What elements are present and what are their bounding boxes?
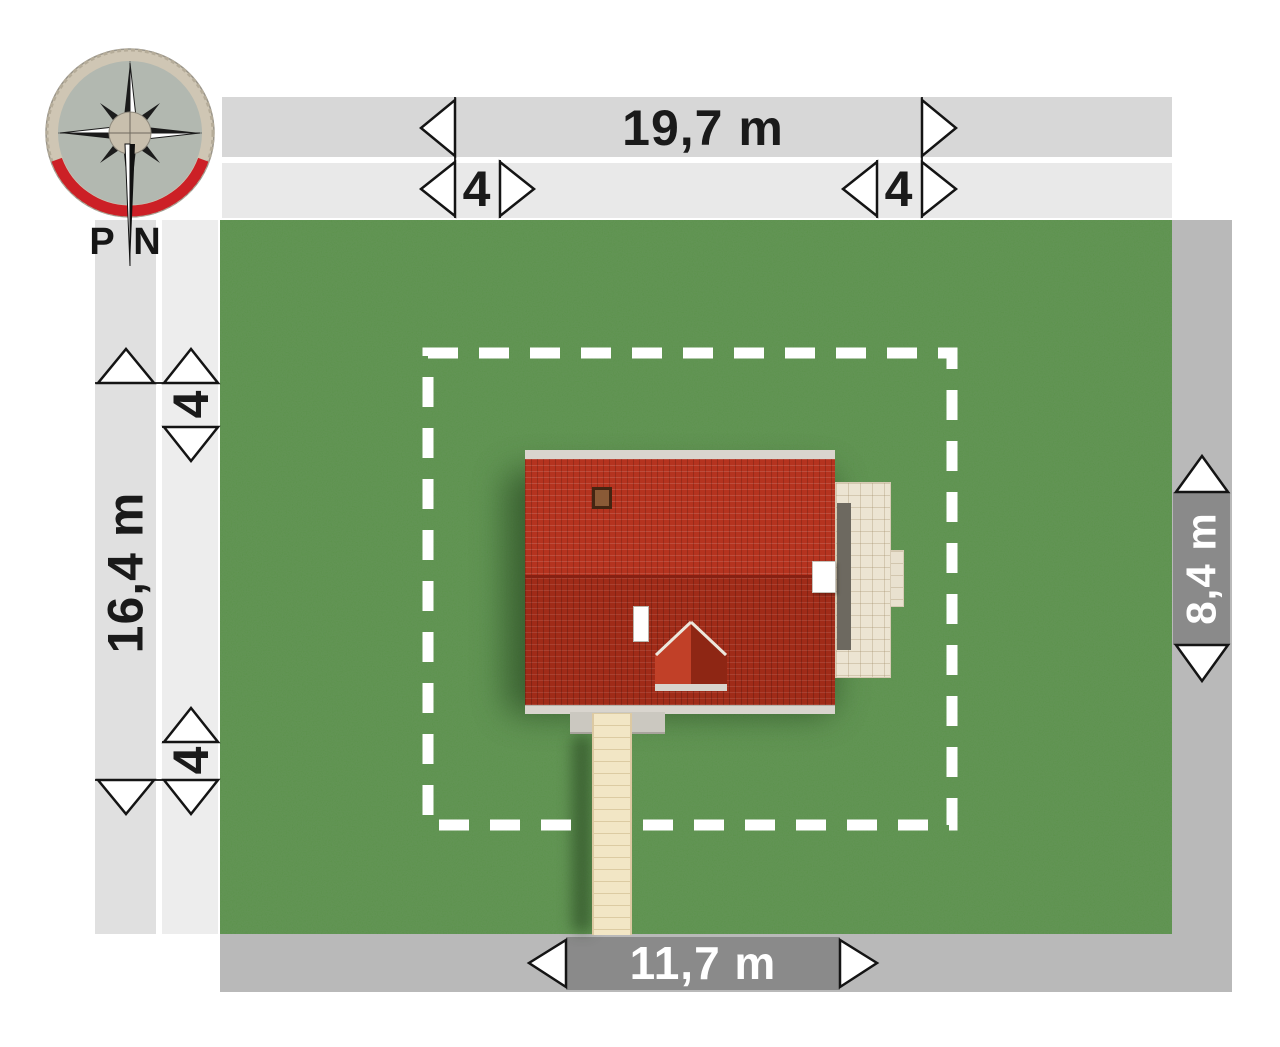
gable-right-face — [691, 621, 727, 691]
gable-eave — [655, 684, 727, 691]
chimney — [592, 487, 612, 509]
house-width-label: 11,7 m — [553, 937, 853, 990]
dimension-band-top-inner — [222, 163, 1172, 218]
walkway-shadow — [572, 735, 592, 933]
roof-slope-north — [525, 459, 835, 575]
compass-south-label: P — [84, 222, 120, 262]
gable-left-face — [655, 621, 691, 691]
setback-left-bottom-label: 4 — [164, 730, 218, 790]
setback-top-right-label: 4 — [869, 162, 929, 216]
dimension-band-left-inner — [162, 220, 218, 934]
ventilation-stack — [812, 561, 836, 593]
site-plan-page: 19,7 m 4 4 16,4 m 4 4 8,4 m 11,7 m — [0, 0, 1280, 1047]
terrace-step — [891, 550, 904, 607]
setback-left-top-label: 4 — [164, 374, 218, 434]
entry-gable-roof — [655, 621, 727, 691]
entrance-walkway — [592, 713, 632, 935]
compass-north-label: N — [129, 222, 165, 262]
terrace-glass-window — [837, 503, 851, 650]
roof-skylight — [633, 606, 649, 642]
setback-top-left-label: 4 — [447, 162, 507, 216]
house-depth-label: 8,4 m — [1173, 469, 1230, 669]
plot-depth-label: 16,4 m — [96, 423, 157, 723]
plot-width-label: 19,7 m — [553, 100, 853, 156]
entry-gable-roof-shape — [655, 621, 727, 691]
